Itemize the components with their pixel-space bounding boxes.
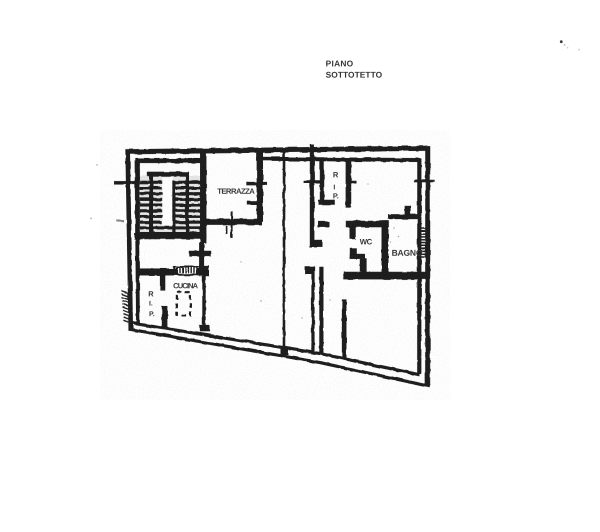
svg-text:SOTTOTETTO: SOTTOTETTO: [326, 70, 383, 80]
svg-text:PIANO: PIANO: [326, 58, 354, 68]
